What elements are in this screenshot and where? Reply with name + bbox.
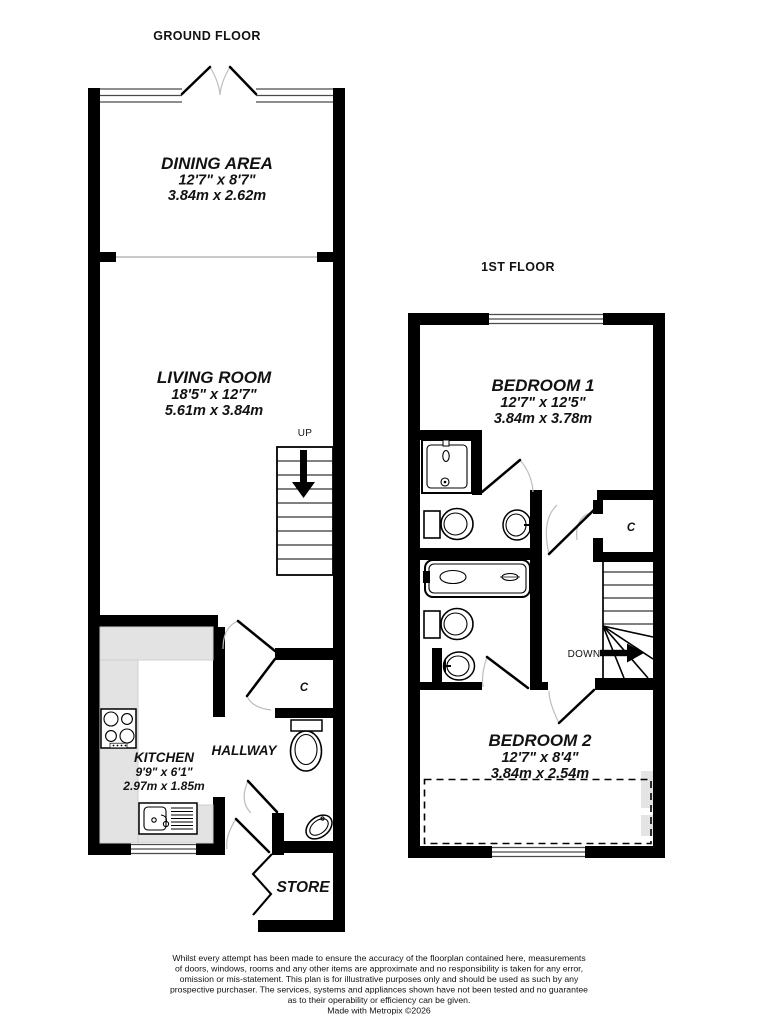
first-floor-plan: 1ST FLOOR DOWN	[408, 260, 665, 858]
hob-icon	[101, 709, 136, 748]
down-arrow-shaft	[600, 650, 627, 656]
wc-toilet-icon	[291, 720, 323, 771]
bedroom2-label: BEDROOM 2 12'7" x 8'4" 3.84m x 2.54m	[489, 731, 593, 782]
bedroom1-imperial: 12'7" x 12'5"	[500, 395, 586, 411]
staircase-down	[600, 562, 653, 678]
stair-treads-first	[603, 572, 653, 624]
disclaimer-line-2: of doors, windows, rooms and any other i…	[175, 964, 583, 974]
bathroom-door-icon	[487, 657, 528, 688]
wc-door-icon	[248, 781, 277, 812]
bath-icon	[423, 560, 530, 597]
disclaimer-line-4: prospective purchaser. The services, sys…	[170, 985, 588, 995]
up-arrow-shaft	[300, 450, 307, 483]
disclaimer-line-1: Whilst every attempt has been made to en…	[172, 953, 586, 963]
bedroom2-imperial: 12'7" x 8'4"	[501, 750, 579, 766]
disclaimer-line-5: as to their operability or efficiency ca…	[288, 995, 471, 1005]
dining-area-label: DINING AREA 12'7" x 8'7" 3.84m x 2.62m	[161, 154, 273, 204]
kitchen-metric: 2.97m x 1.85m	[122, 779, 205, 793]
made-with-credit: Made with Metropix ©2026	[327, 1006, 431, 1016]
bedroom1-metric: 3.84m x 3.78m	[494, 411, 592, 427]
drainer-lines	[171, 808, 193, 829]
ensuite-door-icon	[482, 460, 520, 492]
floorplan-drawing: GROUND FLOOR UP	[0, 0, 758, 1024]
kitchen-label: KITCHEN 9'9" x 6'1" 2.97m x 1.85m	[122, 750, 205, 793]
ensuite-basin-icon	[503, 510, 531, 540]
first-cupboard-label: C	[627, 522, 636, 534]
disclaimer-line-3: omission or mis-statement. This plan is …	[180, 974, 579, 984]
french-door-arcs	[210, 67, 230, 95]
cupboard-door-icon	[247, 659, 275, 696]
bedroom2-name: BEDROOM 2	[489, 731, 593, 750]
bathroom-basin-icon	[444, 652, 475, 680]
dining-window-right	[256, 89, 333, 102]
down-label: DOWN	[568, 649, 601, 660]
kitchen-imperial: 9'9" x 6'1"	[135, 765, 192, 779]
headroom-patch-1	[641, 771, 653, 808]
shower-icon	[422, 440, 472, 493]
hallway-label: HALLWAY	[212, 743, 279, 758]
store-bifold-door-icon	[253, 854, 272, 915]
bedroom1-label: BEDROOM 1 12'7" x 12'5" 3.84m x 3.78m	[492, 376, 595, 427]
wc-basin-icon	[301, 810, 336, 844]
kitchen-sink-icon	[139, 803, 197, 834]
dining-imperial: 12'7" x 8'7"	[178, 173, 256, 189]
ground-cupboard-label: C	[300, 682, 309, 694]
floorplan-page: GROUND FLOOR UP	[0, 0, 758, 1024]
entrance-door-icon	[236, 819, 269, 852]
dining-window-left	[100, 89, 182, 102]
disclaimer: Whilst every attempt has been made to en…	[170, 953, 588, 1016]
bedroom2-metric: 3.84m x 2.54m	[491, 766, 589, 782]
bedroom2-door-icon	[559, 690, 594, 723]
restricted-height-dashed-outline	[425, 780, 652, 844]
living-imperial: 18'5" x 12'7"	[171, 387, 257, 403]
up-label: UP	[298, 428, 313, 439]
kitchen-name: KITCHEN	[134, 750, 194, 765]
living-room-label: LIVING ROOM 18'5" x 12'7" 5.61m x 3.84m	[157, 368, 272, 419]
staircase-up	[277, 447, 333, 575]
bedroom1-name: BEDROOM 1	[492, 376, 595, 395]
bathroom-toilet-icon	[424, 609, 473, 640]
ensuite-toilet-icon	[424, 509, 473, 540]
ground-floor-plan: GROUND FLOOR UP	[88, 29, 345, 932]
first-floor-title: 1ST FLOOR	[481, 260, 555, 274]
down-arrow-head	[627, 644, 644, 663]
ground-door-arcs	[223, 621, 271, 849]
dining-metric: 3.84m x 2.62m	[168, 188, 266, 204]
living-metric: 5.61m x 3.84m	[165, 403, 263, 419]
ground-floor-title: GROUND FLOOR	[153, 29, 261, 43]
living-name: LIVING ROOM	[157, 368, 272, 387]
dining-name: DINING AREA	[161, 154, 273, 173]
store-label: STORE	[276, 879, 330, 896]
hallway-door-icon	[238, 621, 275, 651]
